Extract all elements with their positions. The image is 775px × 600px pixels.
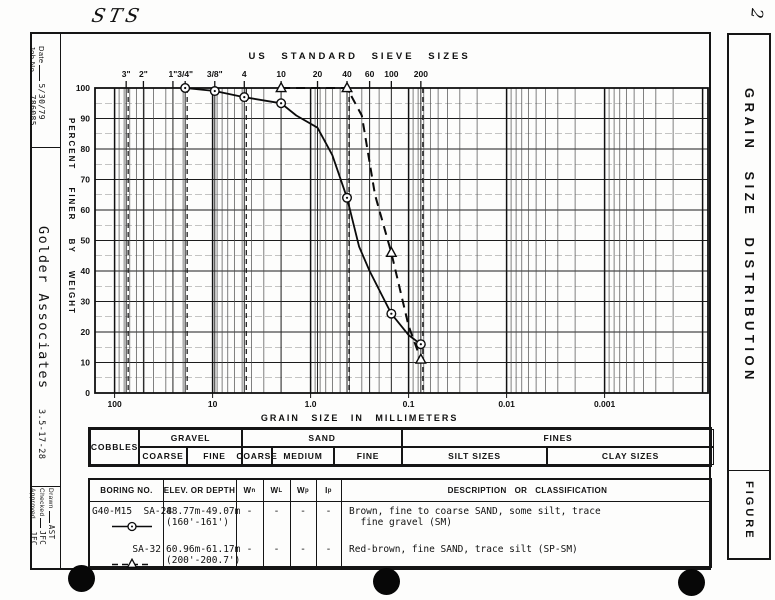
series-line <box>185 88 421 344</box>
approved-rule <box>31 521 39 529</box>
x-tick-label: 1.0 <box>305 399 317 409</box>
drawn-label: Drawn <box>47 488 54 509</box>
index-value: - <box>263 506 290 517</box>
triangle-marker <box>416 354 426 363</box>
circle-marker-dot <box>390 313 392 315</box>
sieve-label: 2" <box>139 69 148 79</box>
circle-marker-dot <box>346 197 348 199</box>
elev-or-depth: 60.96m-61.17m (200'-200.7') <box>166 544 233 566</box>
class-group-cobbles: COBBLES <box>90 429 139 465</box>
date-label: Date <box>37 46 46 63</box>
grain-size-chart: 3"2"1"3/4"3/8"41020406010020010090807060… <box>57 32 713 432</box>
hole-punch <box>678 569 705 596</box>
legend-circle-symbol <box>110 520 154 532</box>
y-tick-label: 20 <box>81 327 91 337</box>
handwritten-page-mark: 2 <box>747 8 767 20</box>
legend-triangle-symbol <box>110 558 154 570</box>
class-group-gravel: GRAVEL <box>139 429 242 447</box>
checked-value: JFC <box>38 530 47 545</box>
index-value: - <box>316 544 341 555</box>
date-rule <box>39 65 47 81</box>
drawn-line: DrawnAST <box>47 488 57 540</box>
job-label: Job No. <box>28 46 37 75</box>
index-value: - <box>316 506 341 517</box>
chart-title: US STANDARD SIEVE SIZES <box>249 51 471 62</box>
approved-value: JFC <box>29 531 38 546</box>
x-tick-labels: 100101.00.10.010.001 <box>108 393 616 409</box>
x-tick-label: 0.1 <box>403 399 415 409</box>
sieve-label: 10 <box>276 69 286 79</box>
description: Brown, fine to coarse SAND, some silt, t… <box>349 506 710 528</box>
y-tick-label: 100 <box>76 83 90 93</box>
class-sub-silt-sizes: SILT SIZES <box>402 447 547 465</box>
table-header-2: Wn <box>236 480 263 501</box>
titleblock-top-divider <box>30 147 60 148</box>
circle-marker-dot <box>184 87 186 89</box>
handwritten-initials: STS <box>90 5 145 27</box>
index-value: - <box>263 544 290 555</box>
figure-divider <box>727 470 771 471</box>
company-name: Golder Associates 3.5-17-28 <box>35 226 51 460</box>
index-value: - <box>236 506 263 517</box>
y-tick-label: 80 <box>81 144 91 154</box>
series-symbol-cell <box>104 519 159 537</box>
class-sub-fine: FINE <box>334 447 402 465</box>
table-header-6: DESCRIPTION OR CLASSIFICATION <box>341 480 714 501</box>
y-tick-label: 90 <box>81 114 91 124</box>
grid <box>95 88 708 393</box>
y-tick-label: 10 <box>81 358 91 368</box>
sieve-label: 60 <box>365 69 375 79</box>
series-g40-m15-sa-28 <box>181 84 425 349</box>
scanned-grain-size-sheet: { "page": {"background": "#fdfdfc", "ink… <box>0 0 775 600</box>
series-symbol-cell <box>104 557 159 575</box>
checked-label: Checked <box>38 488 45 516</box>
class-sub-clay-sizes: CLAY SIZES <box>547 447 714 465</box>
sieve-label: 100 <box>384 69 398 79</box>
sieve-label: 1" <box>169 69 178 79</box>
sieve-label: 4 <box>242 69 247 79</box>
company-text: Golder Associates <box>35 226 51 390</box>
date-line: Date5/30/79 <box>37 46 47 120</box>
y-tick-label: 0 <box>85 388 90 398</box>
circle-marker-dot <box>243 96 245 98</box>
job-line: Job No.786085 <box>28 46 38 126</box>
y-tick-labels: 1009080706050403020100 <box>76 83 90 398</box>
series-line <box>281 88 421 359</box>
class-sub-coarse: COARSE <box>242 447 272 465</box>
table-header-5: Ip <box>316 480 341 501</box>
sheet-title: GRAIN SIZE DISTRIBUTION <box>742 88 757 384</box>
elev-or-depth: 48.77m-49.07m (160'-161') <box>166 506 233 528</box>
y-tick-label: 40 <box>81 266 91 276</box>
sieve-ticks: 3"2"1"3/4"3/8"410204060100200 <box>122 69 428 393</box>
drawn-value: AST <box>47 525 56 540</box>
header-underline <box>90 501 710 502</box>
x-tick-label: 0.01 <box>498 399 515 409</box>
class-sub-fine: FINE <box>187 447 242 465</box>
company-code: 3.5-17-28 <box>36 409 46 460</box>
boring-no: G40-M15 SA-28 <box>92 506 161 517</box>
y-tick-label: 30 <box>81 297 91 307</box>
circle-marker-dot <box>280 102 282 104</box>
sieve-label: 3/4" <box>177 69 193 79</box>
x-tick-label: 0.001 <box>594 399 616 409</box>
series-sa-32 <box>276 83 425 363</box>
x-tick-label: 100 <box>108 399 122 409</box>
class-sub-medium: MEDIUM <box>272 447 334 465</box>
x-tick-label: 10 <box>208 399 218 409</box>
x-axis-title: GRAIN SIZE IN MILLIMETERS <box>261 413 459 423</box>
date-value: 5/30/79 <box>37 83 46 120</box>
checked-rule <box>40 518 48 528</box>
checked-line: CheckedJFC <box>38 488 48 545</box>
job-value: 786085 <box>28 95 37 126</box>
table-header-3: WL <box>263 480 290 501</box>
description: Red-brown, fine SAND, trace silt (SP-SM) <box>349 544 710 555</box>
y-tick-label: 50 <box>81 236 91 246</box>
index-value: - <box>236 544 263 555</box>
drawn-rule <box>49 511 57 523</box>
sieve-label: 3/8" <box>207 69 223 79</box>
approved-line: ApprovedJFC <box>29 488 39 546</box>
triangle-marker <box>387 248 397 257</box>
sieve-label: 3" <box>122 69 131 79</box>
sieve-label: 200 <box>414 69 428 79</box>
y-tick-label: 60 <box>81 205 91 215</box>
circle-marker-dot <box>214 90 216 92</box>
circle-marker-dot <box>420 343 422 345</box>
sieve-label: 40 <box>342 69 352 79</box>
table-header-1: ELEV. OR DEPTH <box>163 480 236 501</box>
classification-strip: COBBLESGRAVELSANDFINESCOARSEFINECOARSEME… <box>88 427 712 467</box>
sample-table: BORING NO.ELEV. OR DEPTHWnWLWpIpDESCRIPT… <box>88 478 712 568</box>
figure-label: FIGURE <box>743 481 755 541</box>
class-sub-coarse: COARSE <box>139 447 187 465</box>
class-group-sand: SAND <box>242 429 402 447</box>
hole-punch <box>373 568 400 595</box>
index-value: - <box>290 544 316 555</box>
job-rule <box>30 77 38 93</box>
index-value: - <box>290 506 316 517</box>
class-group-fines: FINES <box>402 429 714 447</box>
table-header-0: BORING NO. <box>90 480 163 501</box>
y-tick-label: 70 <box>81 175 91 185</box>
table-header-4: Wp <box>290 480 316 501</box>
approved-label: Approved <box>29 488 36 519</box>
hole-punch <box>68 565 95 592</box>
boring-no: SA-32 <box>92 544 161 555</box>
sieve-label: 20 <box>313 69 323 79</box>
titleblock-bottom-divider <box>30 486 60 487</box>
